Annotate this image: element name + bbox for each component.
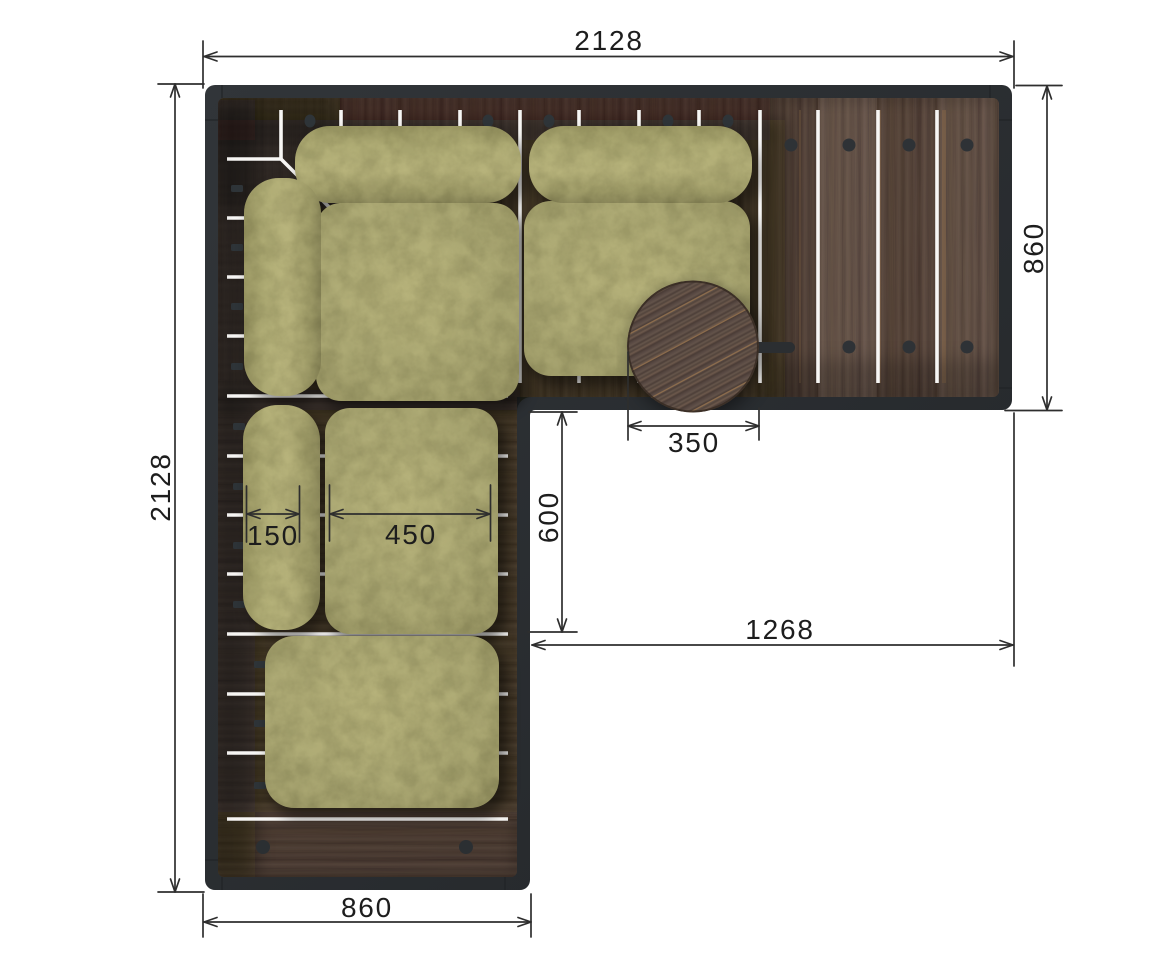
svg-text:860: 860	[341, 892, 393, 923]
svg-text:860: 860	[1018, 222, 1049, 274]
svg-text:1268: 1268	[745, 614, 815, 645]
svg-text:150: 150	[247, 520, 299, 551]
svg-text:2128: 2128	[145, 452, 176, 522]
svg-text:350: 350	[668, 427, 720, 458]
svg-text:600: 600	[533, 491, 564, 543]
svg-text:2128: 2128	[574, 25, 644, 56]
svg-text:450: 450	[385, 519, 437, 550]
